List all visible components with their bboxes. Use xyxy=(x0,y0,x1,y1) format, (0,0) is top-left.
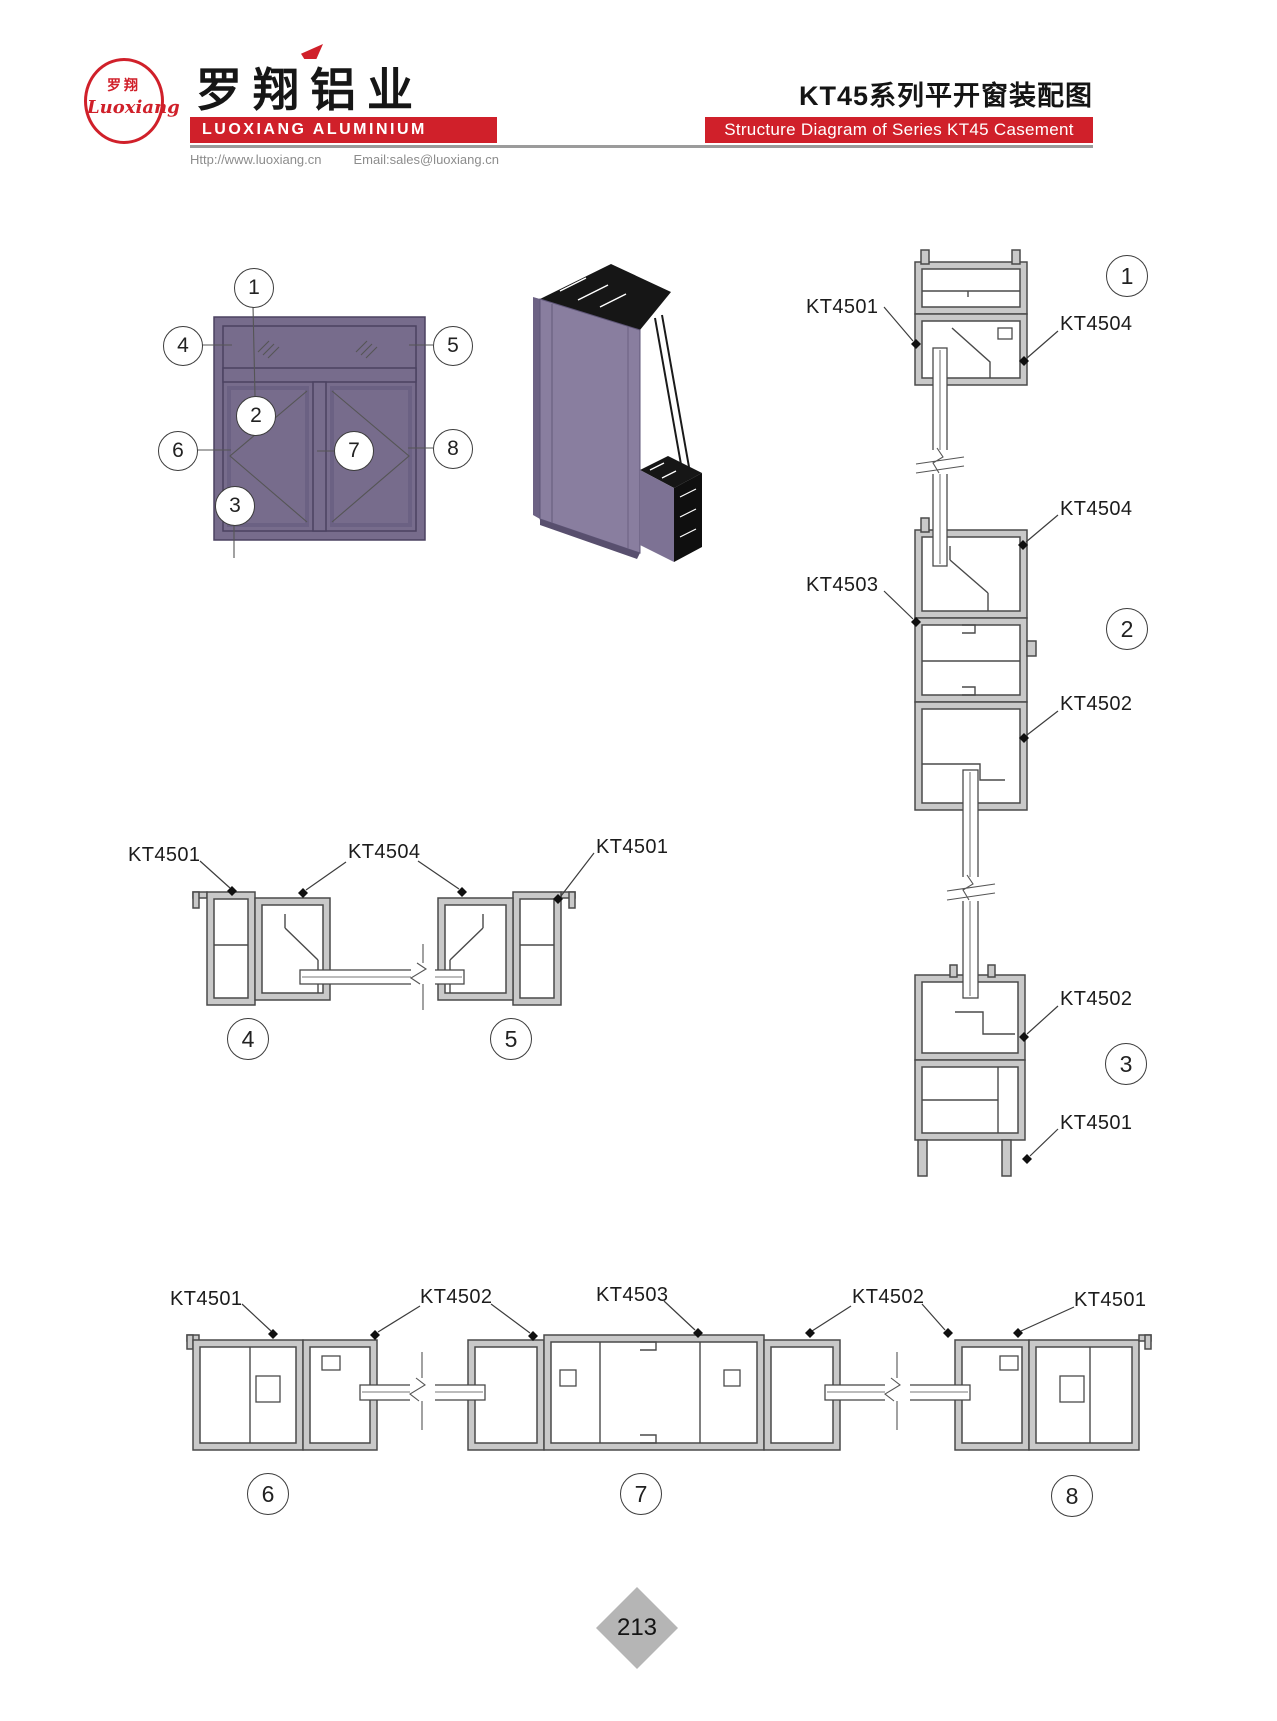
label-sec2-kt4503: KT4503 xyxy=(806,574,878,597)
label-mid-left-kt4501: KT4501 xyxy=(128,844,200,867)
callout-number: 4 xyxy=(177,334,189,358)
section-circle-8: 8 xyxy=(1051,1475,1093,1517)
section-circle-1: 1 xyxy=(1106,255,1148,297)
callout-circle-3: 3 xyxy=(215,486,255,526)
section-number: 3 xyxy=(1120,1051,1133,1078)
section-circle-7: 7 xyxy=(620,1473,662,1515)
callout-number: 6 xyxy=(172,439,184,463)
catalog-page: 罗翔 Luoxiang 罗翔铝业 LUOXIANG ALUMINIUM KT45… xyxy=(0,0,1277,1721)
section-4-5-profile xyxy=(193,892,575,1010)
label-sec2-kt4504: KT4504 xyxy=(1060,498,1132,521)
section-number: 4 xyxy=(242,1026,255,1053)
callout-circle-2: 2 xyxy=(236,396,276,436)
section-circle-3: 3 xyxy=(1105,1043,1147,1085)
section-6-7-8-profile xyxy=(187,1335,1151,1450)
label-sec3-kt4501: KT4501 xyxy=(1060,1112,1132,1135)
label-bottom-kt4502-left: KT4502 xyxy=(420,1286,492,1309)
callout-number: 2 xyxy=(250,404,262,428)
callout-number: 8 xyxy=(447,437,459,461)
section-number: 7 xyxy=(635,1481,648,1508)
label-sec2-kt4502: KT4502 xyxy=(1060,693,1132,716)
section-number: 1 xyxy=(1121,263,1134,290)
callout-number: 7 xyxy=(348,439,360,463)
callout-number: 1 xyxy=(248,276,260,300)
label-bottom-kt4501-right: KT4501 xyxy=(1074,1289,1146,1312)
section-number: 5 xyxy=(505,1026,518,1053)
label-mid-center-kt4504: KT4504 xyxy=(348,841,420,864)
section-circle-4: 4 xyxy=(227,1018,269,1060)
callout-circle-4: 4 xyxy=(163,326,203,366)
callout-circle-8: 8 xyxy=(433,429,473,469)
label-mid-right-kt4501: KT4501 xyxy=(596,836,668,859)
section-circle-2: 2 xyxy=(1106,608,1148,650)
callout-number: 3 xyxy=(229,494,241,518)
label-sec3-kt4502: KT4502 xyxy=(1060,988,1132,1011)
section-circle-6: 6 xyxy=(247,1473,289,1515)
section-1-profile xyxy=(915,250,1027,385)
callout-circle-6: 6 xyxy=(158,431,198,471)
callout-circle-5: 5 xyxy=(433,326,473,366)
label-sec1-kt4501: KT4501 xyxy=(806,296,878,319)
page-number: 213 xyxy=(608,1599,666,1657)
label-sec1-kt4504: KT4504 xyxy=(1060,313,1132,336)
section-number: 8 xyxy=(1066,1483,1079,1510)
section-number: 2 xyxy=(1121,616,1134,643)
section-number: 6 xyxy=(262,1481,275,1508)
callout-number: 5 xyxy=(447,334,459,358)
label-bottom-kt4503: KT4503 xyxy=(596,1284,668,1307)
label-bottom-kt4502-right: KT4502 xyxy=(852,1286,924,1309)
profile-3d-render xyxy=(533,264,702,562)
callout-circle-7: 7 xyxy=(334,431,374,471)
section-circle-5: 5 xyxy=(490,1018,532,1060)
callout-circle-1: 1 xyxy=(234,268,274,308)
label-bottom-kt4501-left: KT4501 xyxy=(170,1288,242,1311)
